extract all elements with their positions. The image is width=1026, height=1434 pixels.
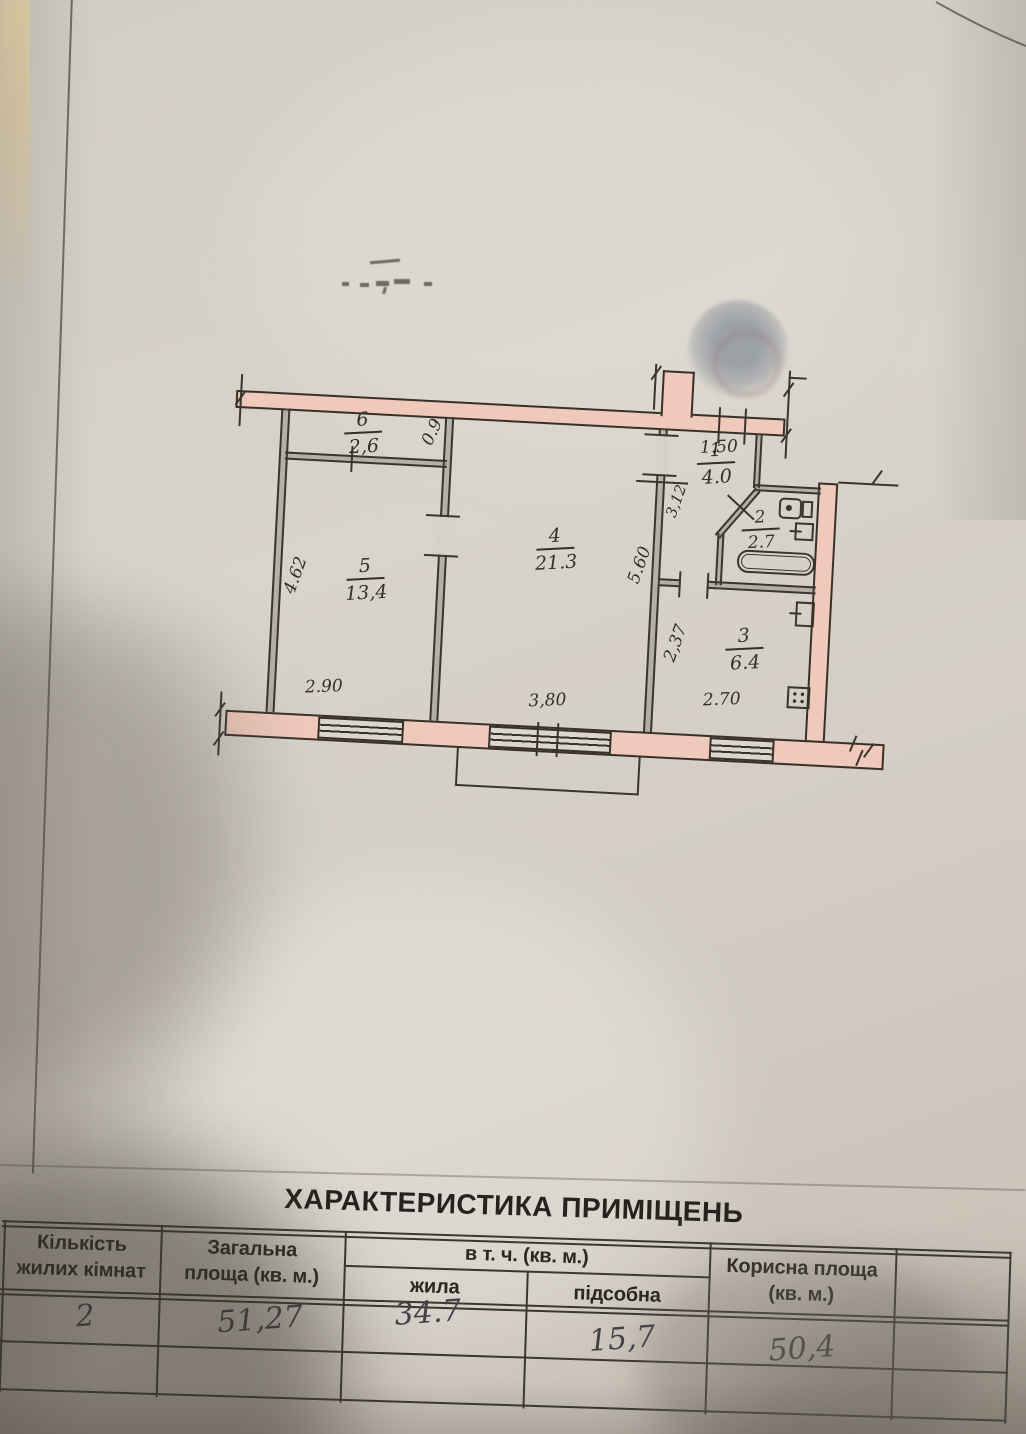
page-frame-line — [32, 0, 73, 1173]
ext-right-wall-top — [838, 481, 898, 486]
room-4-number: 4 — [535, 524, 574, 551]
header-rooms-count: Кількість жилих кімнат — [2, 1228, 161, 1285]
room-3-label: 3 6.4 — [714, 623, 774, 675]
room-3-area: 6.4 — [716, 648, 775, 675]
table-title: ХАРАКТЕРИСТИКА ПРИМІЩЕНЬ — [0, 1174, 1026, 1238]
data-row-rule — [0, 1340, 1008, 1374]
dim-entrance-width: 1.50 — [700, 437, 739, 458]
page-corner-curve — [886, 0, 1026, 70]
door-kitchen — [680, 577, 707, 590]
table-right-border — [1004, 1252, 1011, 1424]
stove-symbol — [786, 686, 810, 709]
value-useful-area: 50,4 — [753, 1328, 850, 1370]
header-total-line2: площа (кв. м.) — [159, 1259, 344, 1291]
room-3-number: 3 — [724, 624, 763, 651]
room-2-area: 2.7 — [732, 529, 791, 554]
door-room4 — [655, 436, 670, 475]
dim-room4-width: 3,80 — [528, 690, 567, 711]
empty-row-rule — [0, 1388, 1006, 1422]
window-kitchen — [709, 737, 775, 762]
characteristics-table: ХАРАКТЕРИСТИКА ПРИМІЩЕНЬ Кількість жилих… — [0, 1160, 1026, 1434]
room-5-number: 5 — [345, 554, 384, 581]
room-4-label: 4 21.3 — [525, 523, 585, 575]
dim-room5-width: 2.90 — [305, 676, 344, 697]
wall-entrance-stub — [661, 370, 695, 418]
value-living-area: 34.7 — [379, 1292, 476, 1334]
cream-page-edge — [0, 0, 30, 300]
header-useful-area: Корисна площа (кв. м.) — [708, 1252, 896, 1310]
faint-handwriting-marks — [336, 256, 486, 300]
room-5-area: 13,4 — [337, 578, 396, 605]
window-room5 — [317, 717, 404, 743]
sink-tap — [790, 530, 802, 533]
header-total-area: Загальна площа (кв. м.) — [159, 1233, 345, 1291]
dim-kitchen-width: 2.70 — [702, 689, 741, 710]
room-6-area: 2,6 — [334, 432, 393, 459]
dim-kitchen-height: 2,37 — [656, 612, 695, 675]
header-rooms-line2: жилих кімнат — [2, 1254, 160, 1285]
wall-bath-top — [755, 484, 821, 494]
room-2-label: 2 2.7 — [731, 506, 791, 554]
door-room5 — [436, 517, 451, 556]
scanned-floor-plan-document: 6 2,6 5 13,4 4 21.3 1 4.0 2 2.7 3 6.4 2.… — [0, 0, 1026, 1434]
room-2-number: 2 — [741, 507, 780, 532]
room-6-label: 6 2,6 — [333, 407, 393, 459]
floor-plan: 6 2,6 5 13,4 4 21.3 1 4.0 2 2.7 3 6.4 2.… — [216, 358, 929, 853]
ext-bottom-left — [217, 691, 222, 755]
value-rooms-count: 2 — [54, 1297, 116, 1336]
ext-top-right-arrow — [789, 377, 807, 380]
value-total-area: 51,27 — [204, 1298, 316, 1341]
wall-bath-left — [715, 533, 725, 585]
wall-hall-right — [753, 433, 763, 488]
right-edge-shading — [930, 0, 1026, 520]
value-auxiliary-area: 15,7 — [574, 1318, 671, 1360]
room-1-area: 4.0 — [687, 463, 746, 490]
room-4-area: 21.3 — [526, 548, 585, 575]
kitchen-sink-tap — [789, 612, 801, 615]
toilet-tank — [801, 501, 813, 519]
room-6-number: 6 — [343, 408, 382, 435]
wall-top — [235, 390, 785, 437]
room-5-label: 5 13,4 — [335, 553, 395, 605]
